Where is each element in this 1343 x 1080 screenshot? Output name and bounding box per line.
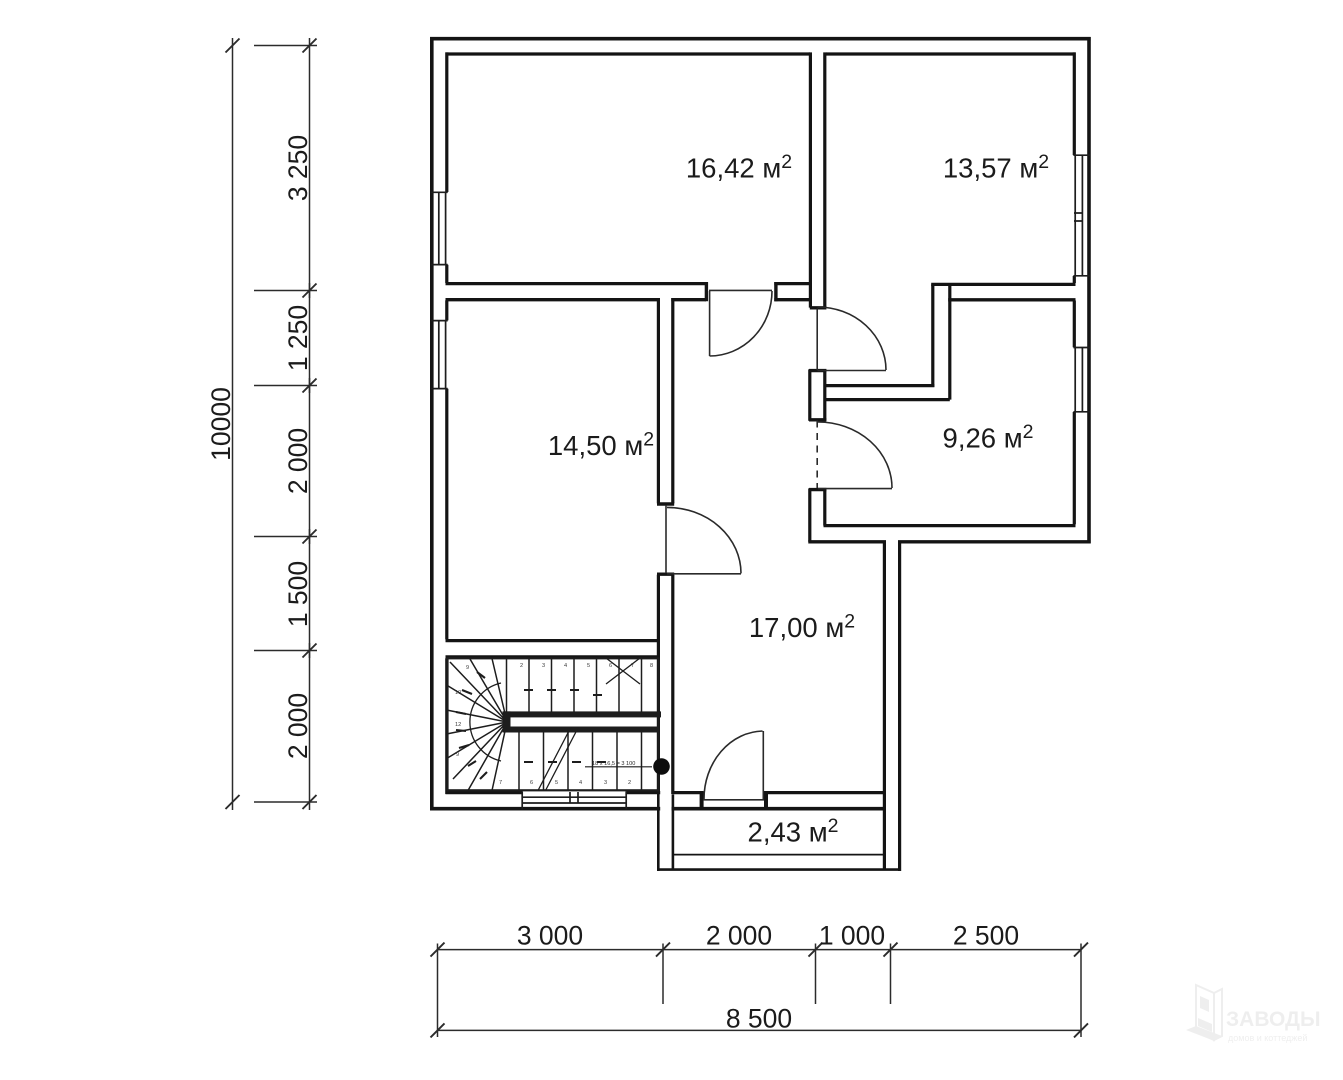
svg-text:2 000: 2 000 [283,428,313,494]
svg-text:4: 4 [579,780,582,786]
svg-text:12: 12 [455,722,461,728]
svg-text:2 500: 2 500 [953,921,1019,951]
svg-text:домов и коттеджей: домов и коттеджей [1228,1033,1307,1043]
svg-text:18 х 16,5 = 3 100: 18 х 16,5 = 3 100 [592,761,635,767]
svg-text:ЗАВОДЫ: ЗАВОДЫ [1226,1008,1321,1031]
svg-text:14,50 м2: 14,50 м2 [548,429,654,462]
svg-text:1 500: 1 500 [283,561,313,627]
svg-text:8 500: 8 500 [726,1004,792,1034]
svg-text:3 250: 3 250 [283,135,313,201]
svg-text:13,57 м2: 13,57 м2 [943,151,1049,184]
svg-text:10000: 10000 [206,387,236,461]
svg-text:7: 7 [499,780,502,786]
svg-text:3: 3 [542,663,545,669]
svg-text:17,00 м2: 17,00 м2 [749,611,855,644]
svg-text:5: 5 [555,780,558,786]
svg-text:7: 7 [631,663,634,669]
svg-text:9: 9 [456,752,459,758]
svg-text:2: 2 [628,780,631,786]
svg-text:2 000: 2 000 [283,693,313,759]
svg-text:2: 2 [520,663,523,669]
svg-text:6: 6 [530,780,533,786]
svg-text:2,43 м2: 2,43 м2 [748,815,839,848]
svg-text:9,26 м2: 9,26 м2 [943,421,1034,454]
svg-text:1 250: 1 250 [283,305,313,371]
svg-text:10: 10 [455,690,461,696]
svg-text:8: 8 [650,663,653,669]
svg-text:3 000: 3 000 [517,921,583,951]
svg-text:3: 3 [604,780,607,786]
svg-text:16,42 м2: 16,42 м2 [686,151,792,184]
svg-text:6: 6 [609,663,612,669]
svg-text:1 000: 1 000 [819,921,885,951]
svg-text:9: 9 [466,665,469,671]
svg-text:5: 5 [587,663,590,669]
svg-text:2 000: 2 000 [706,921,772,951]
svg-text:4: 4 [564,663,567,669]
